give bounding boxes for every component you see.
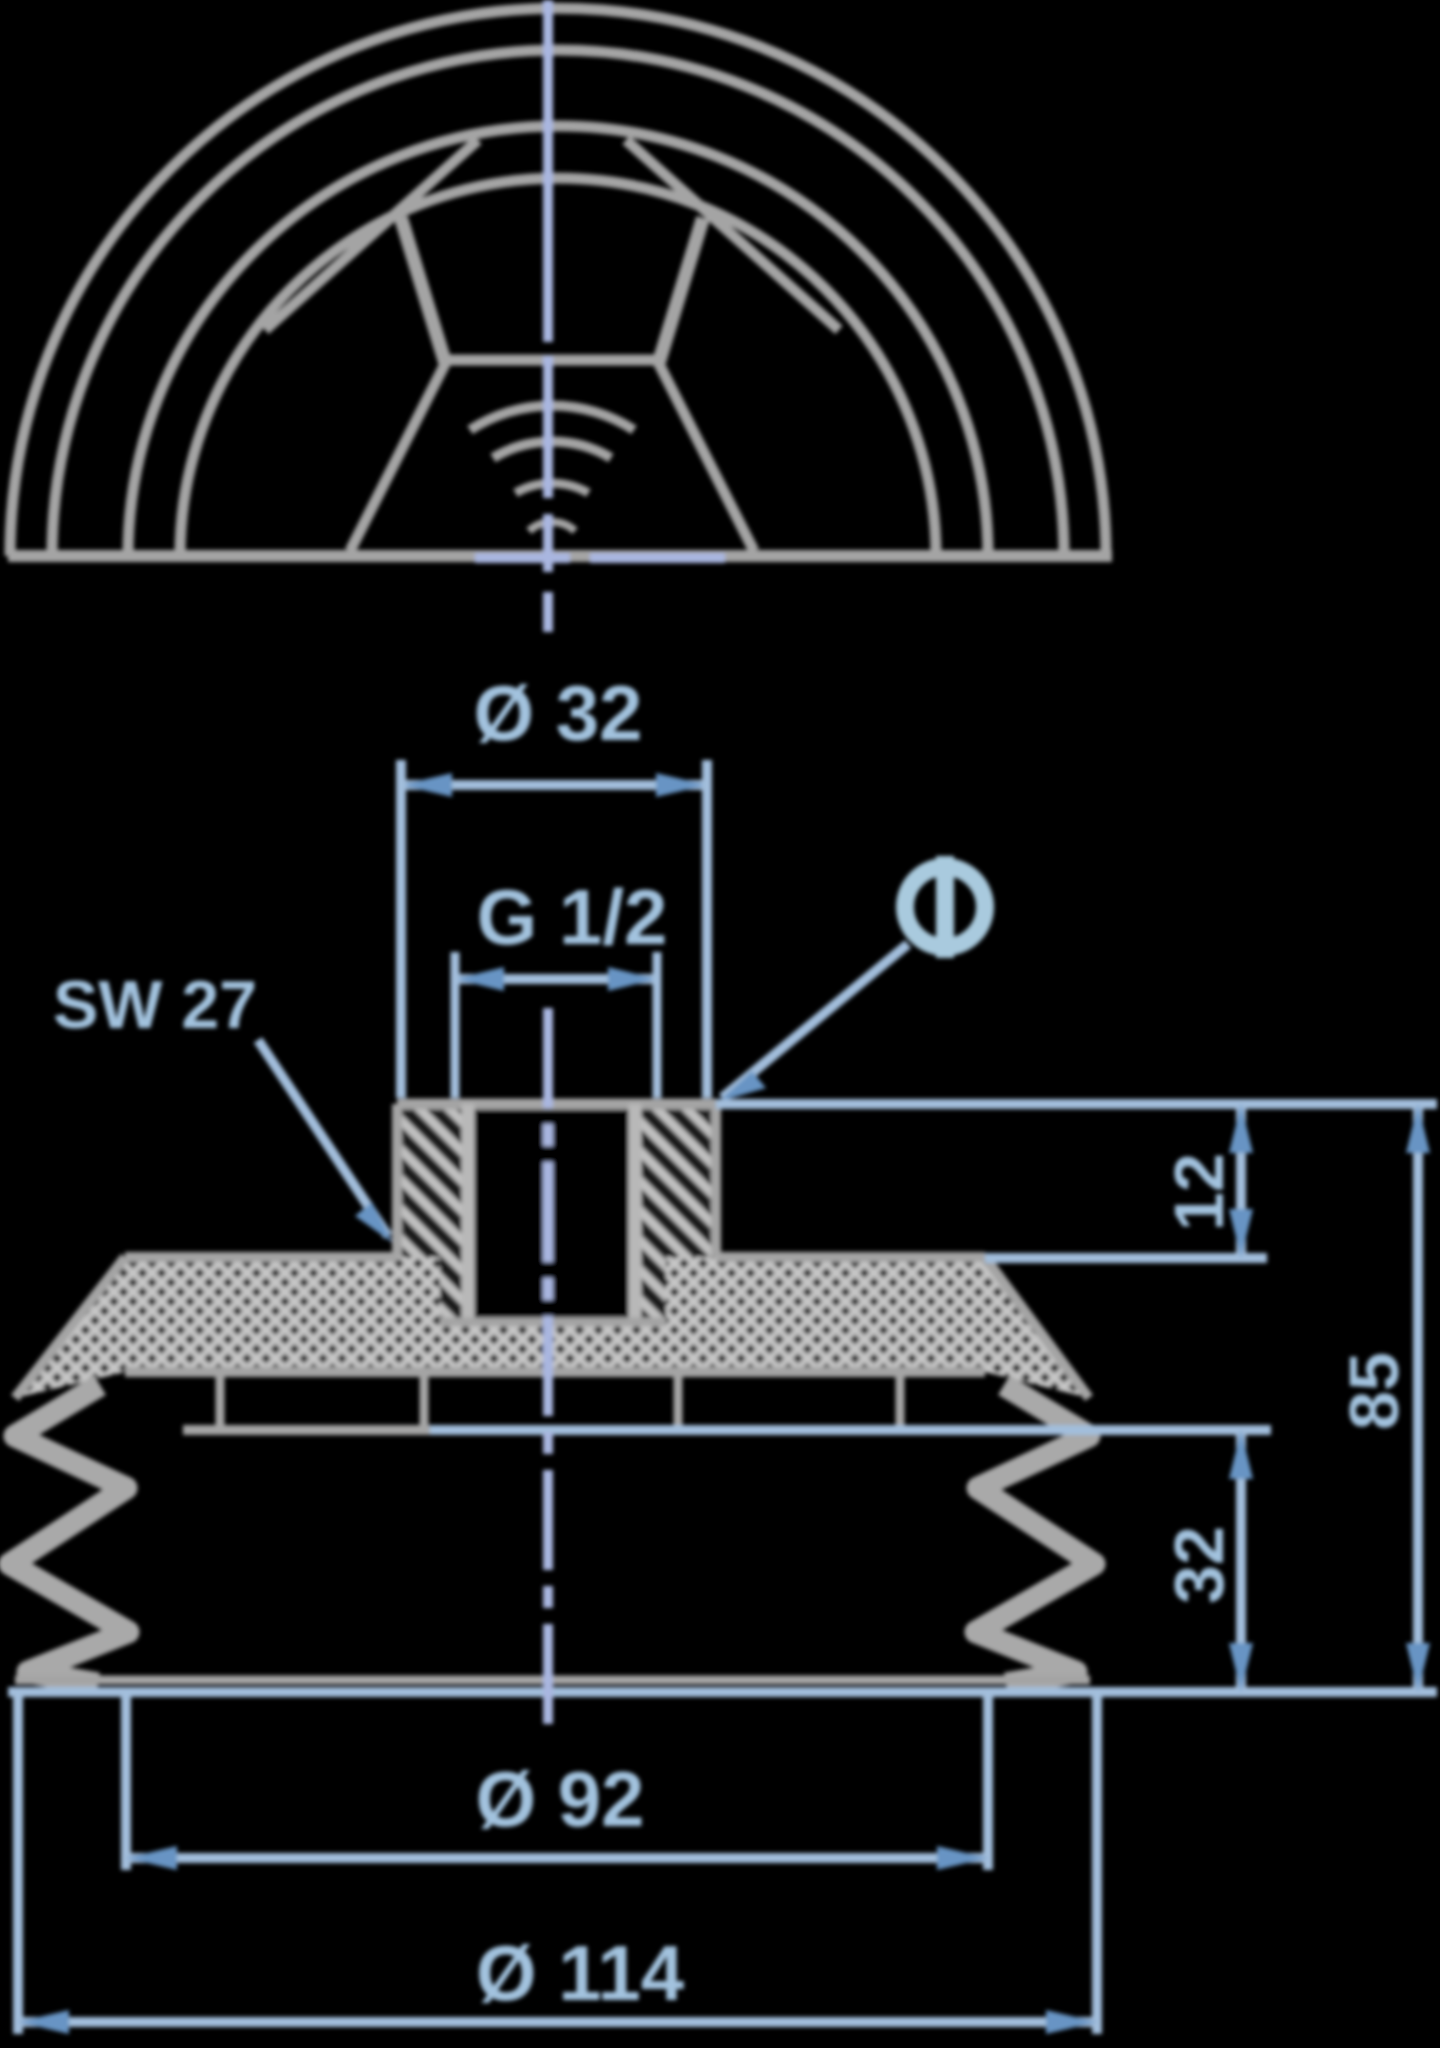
svg-text:32: 32: [1160, 1526, 1238, 1604]
svg-text:SW 27: SW 27: [53, 967, 257, 1043]
svg-text:Ø 114: Ø 114: [476, 1929, 684, 2017]
svg-text:G 1/2: G 1/2: [477, 873, 668, 961]
svg-text:85: 85: [1335, 1352, 1413, 1430]
svg-text:Ø 32: Ø 32: [473, 669, 642, 757]
svg-text:Ø 92: Ø 92: [475, 1755, 644, 1843]
svg-text:12: 12: [1160, 1153, 1238, 1231]
